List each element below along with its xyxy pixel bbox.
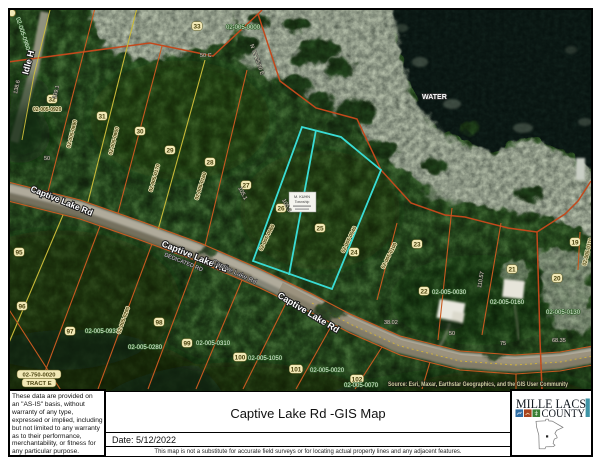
svg-text:COUNTY: COUNTY <box>542 408 586 420</box>
